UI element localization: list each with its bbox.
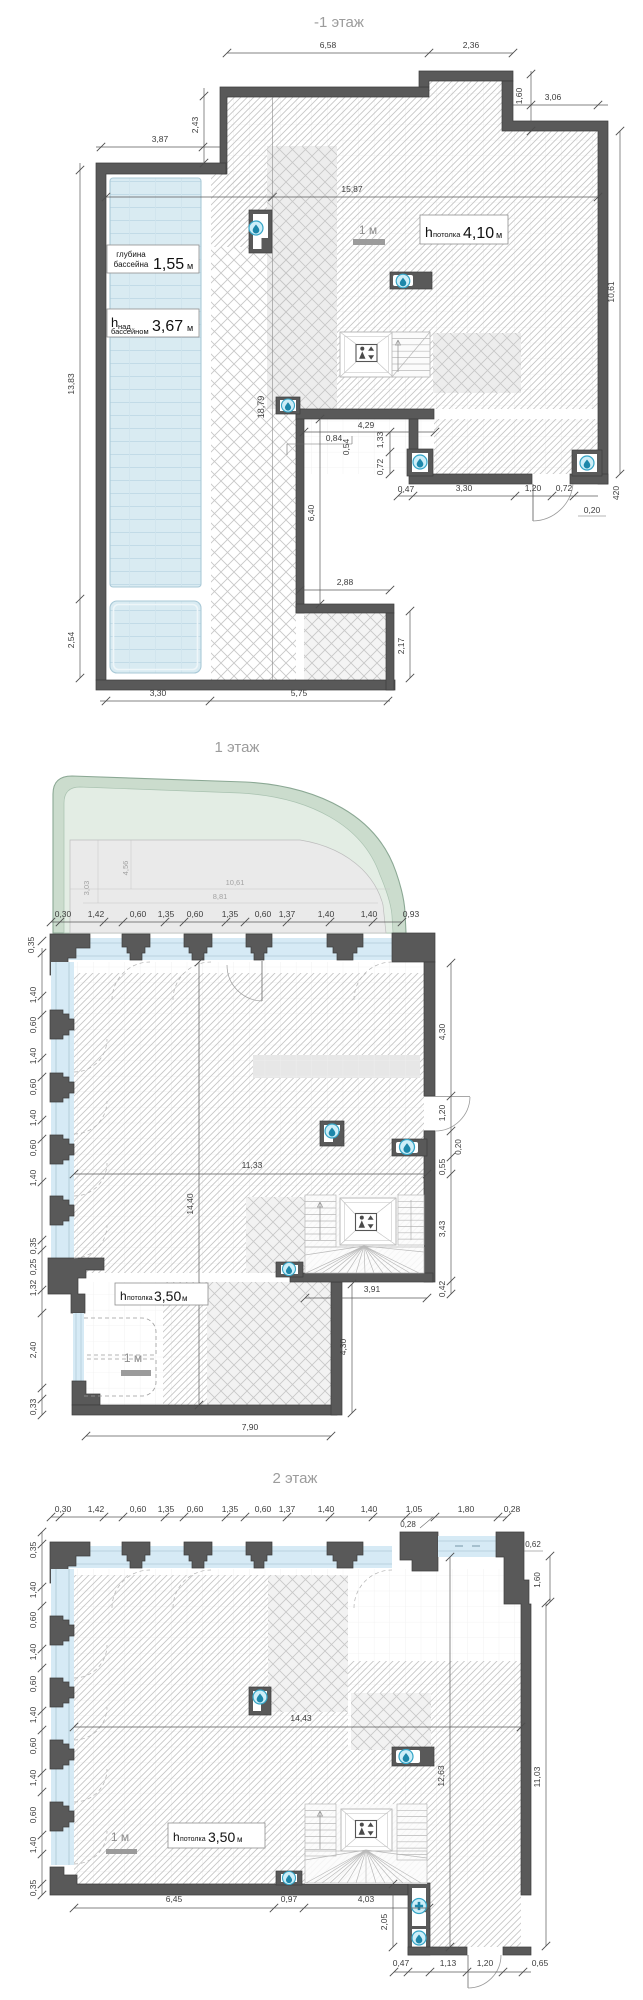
svg-text:0,62: 0,62 (525, 1540, 541, 1549)
svg-text:6,58: 6,58 (320, 40, 337, 50)
svg-text:1 м: 1 м (124, 1351, 142, 1365)
svg-text:0,20: 0,20 (584, 505, 601, 515)
svg-text:3,06: 3,06 (545, 92, 562, 102)
svg-text:1,20: 1,20 (477, 1958, 494, 1968)
svg-text:1,40: 1,40 (28, 1109, 38, 1126)
svg-text:0,20: 0,20 (454, 1139, 463, 1155)
svg-text:0,35: 0,35 (28, 1879, 38, 1896)
svg-text:0,33: 0,33 (28, 1398, 38, 1415)
svg-text:0,60: 0,60 (28, 1611, 38, 1628)
svg-text:2,40: 2,40 (28, 1341, 38, 1358)
svg-text:1,32: 1,32 (28, 1279, 38, 1296)
svg-text:2 этаж: 2 этаж (273, 1470, 318, 1487)
svg-text:1,55: 1,55 (153, 256, 184, 273)
svg-text:1,35: 1,35 (158, 1504, 175, 1514)
svg-text:1 этаж: 1 этаж (215, 739, 260, 756)
svg-text:бассейна: бассейна (114, 260, 149, 269)
svg-text:0,60: 0,60 (255, 909, 272, 919)
svg-text:4,29: 4,29 (358, 420, 375, 430)
svg-text:0,60: 0,60 (255, 1504, 272, 1514)
svg-text:3,91: 3,91 (364, 1284, 381, 1294)
svg-text:0,30: 0,30 (55, 909, 72, 919)
svg-text:-1 этаж: -1 этаж (314, 14, 364, 31)
svg-text:1,40: 1,40 (28, 1643, 38, 1660)
svg-text:1,35: 1,35 (158, 909, 175, 919)
svg-text:0,35: 0,35 (26, 936, 36, 953)
svg-text:1,37: 1,37 (279, 1504, 296, 1514)
svg-text:3,43: 3,43 (437, 1220, 447, 1237)
svg-text:6,45: 6,45 (166, 1894, 183, 1904)
svg-text:1,35: 1,35 (222, 909, 239, 919)
svg-text:2,43: 2,43 (190, 116, 200, 133)
svg-text:3,03: 3,03 (82, 881, 91, 896)
svg-text:0,72: 0,72 (556, 483, 573, 493)
svg-text:1,40: 1,40 (28, 1047, 38, 1064)
svg-text:h: h (120, 1289, 127, 1303)
svg-text:0,97: 0,97 (281, 1894, 298, 1904)
svg-text:0,42: 0,42 (437, 1280, 447, 1297)
svg-text:2,36: 2,36 (463, 40, 480, 50)
svg-text:потолка: потолка (180, 1836, 206, 1843)
svg-text:2,54: 2,54 (66, 631, 76, 648)
svg-text:глубина: глубина (116, 250, 146, 259)
svg-text:1,05: 1,05 (406, 1504, 423, 1514)
svg-text:0,60: 0,60 (28, 1078, 38, 1095)
svg-text:1,40: 1,40 (361, 1504, 378, 1514)
svg-text:4,10: 4,10 (463, 225, 494, 242)
svg-text:потолка: потолка (127, 1295, 153, 1302)
svg-text:0,47: 0,47 (398, 484, 415, 494)
svg-text:2,05: 2,05 (379, 1913, 389, 1930)
svg-text:0,35: 0,35 (28, 1237, 38, 1254)
svg-text:14,40: 14,40 (185, 1193, 195, 1215)
svg-text:12,63: 12,63 (436, 1765, 446, 1787)
svg-text:10,61: 10,61 (606, 281, 616, 303)
svg-text:3,67: 3,67 (152, 318, 183, 335)
svg-text:3,50: 3,50 (208, 1829, 235, 1845)
svg-text:0,60: 0,60 (130, 909, 147, 919)
svg-text:1,40: 1,40 (28, 986, 38, 1003)
svg-text:0,35: 0,35 (28, 1541, 38, 1558)
svg-text:1,37: 1,37 (279, 909, 296, 919)
svg-text:0,60: 0,60 (28, 1806, 38, 1823)
svg-text:13,83: 13,83 (66, 373, 76, 395)
svg-text:м: м (187, 261, 193, 271)
svg-text:1,40: 1,40 (28, 1169, 38, 1186)
svg-text:0,65: 0,65 (532, 1958, 549, 1968)
svg-text:1,40: 1,40 (28, 1836, 38, 1853)
svg-text:14,43: 14,43 (290, 1713, 312, 1723)
svg-text:1,35: 1,35 (222, 1504, 239, 1514)
svg-text:1,20: 1,20 (437, 1104, 447, 1121)
svg-text:1,40: 1,40 (28, 1581, 38, 1598)
svg-text:1 м: 1 м (111, 1830, 129, 1844)
svg-text:1,20: 1,20 (525, 483, 542, 493)
svg-text:1,33: 1,33 (375, 431, 385, 448)
svg-text:0,72: 0,72 (375, 458, 385, 475)
svg-text:11,03: 11,03 (532, 1766, 542, 1787)
svg-text:1,42: 1,42 (88, 909, 105, 919)
svg-text:1,60: 1,60 (533, 1572, 542, 1588)
svg-text:потолка: потолка (433, 230, 461, 239)
svg-text:2,88: 2,88 (337, 577, 354, 587)
svg-text:4,30: 4,30 (437, 1023, 447, 1040)
svg-text:4,56: 4,56 (121, 861, 130, 876)
svg-text:бассейном: бассейном (111, 327, 149, 336)
svg-text:0,28: 0,28 (504, 1504, 521, 1514)
svg-text:4,03: 4,03 (358, 1894, 375, 1904)
svg-text:1,40: 1,40 (318, 1504, 335, 1514)
svg-text:0,60: 0,60 (28, 1139, 38, 1156)
svg-text:7,90: 7,90 (242, 1422, 259, 1432)
svg-text:5,75: 5,75 (291, 688, 308, 698)
svg-text:1,80: 1,80 (458, 1504, 475, 1514)
svg-text:1 м: 1 м (359, 223, 377, 237)
svg-text:1,40: 1,40 (361, 909, 378, 919)
svg-text:10,61: 10,61 (226, 878, 245, 887)
svg-text:0,54: 0,54 (341, 438, 351, 455)
svg-text:h: h (425, 224, 433, 240)
svg-text:0,93: 0,93 (403, 909, 420, 919)
svg-text:1,40: 1,40 (318, 909, 335, 919)
svg-text:0,55: 0,55 (437, 1158, 447, 1175)
svg-text:h: h (173, 1830, 180, 1844)
svg-text:0,60: 0,60 (28, 1675, 38, 1692)
svg-text:1,40: 1,40 (28, 1769, 38, 1786)
svg-text:15,87: 15,87 (341, 184, 363, 194)
svg-text:0,30: 0,30 (55, 1504, 72, 1514)
svg-text:3,30: 3,30 (150, 688, 167, 698)
svg-text:3,30: 3,30 (456, 483, 473, 493)
svg-text:м: м (496, 230, 502, 240)
svg-text:м: м (187, 323, 193, 333)
svg-text:0,25: 0,25 (28, 1258, 38, 1275)
svg-text:0,60: 0,60 (28, 1016, 38, 1033)
svg-text:м: м (182, 1294, 188, 1303)
svg-text:0,60: 0,60 (130, 1504, 147, 1514)
svg-text:0,47: 0,47 (393, 1958, 410, 1968)
svg-text:м: м (237, 1835, 243, 1844)
svg-text:0,60: 0,60 (187, 909, 204, 919)
svg-text:2,17: 2,17 (396, 637, 406, 654)
svg-text:1,13: 1,13 (440, 1958, 457, 1968)
svg-text:0,28: 0,28 (400, 1520, 416, 1529)
svg-text:11,33: 11,33 (242, 1160, 263, 1170)
svg-text:1,42: 1,42 (88, 1504, 105, 1514)
svg-text:6,40: 6,40 (306, 504, 316, 521)
svg-text:3,50: 3,50 (154, 1288, 181, 1304)
svg-text:0,60: 0,60 (28, 1737, 38, 1754)
svg-text:1,60: 1,60 (514, 87, 524, 104)
svg-text:1,40: 1,40 (28, 1706, 38, 1723)
svg-text:0,60: 0,60 (187, 1504, 204, 1514)
svg-text:4,30: 4,30 (338, 1338, 348, 1355)
svg-text:420: 420 (611, 486, 621, 500)
svg-text:8,81: 8,81 (213, 892, 228, 901)
svg-text:18,79: 18,79 (256, 396, 266, 419)
svg-text:3,87: 3,87 (152, 134, 169, 144)
